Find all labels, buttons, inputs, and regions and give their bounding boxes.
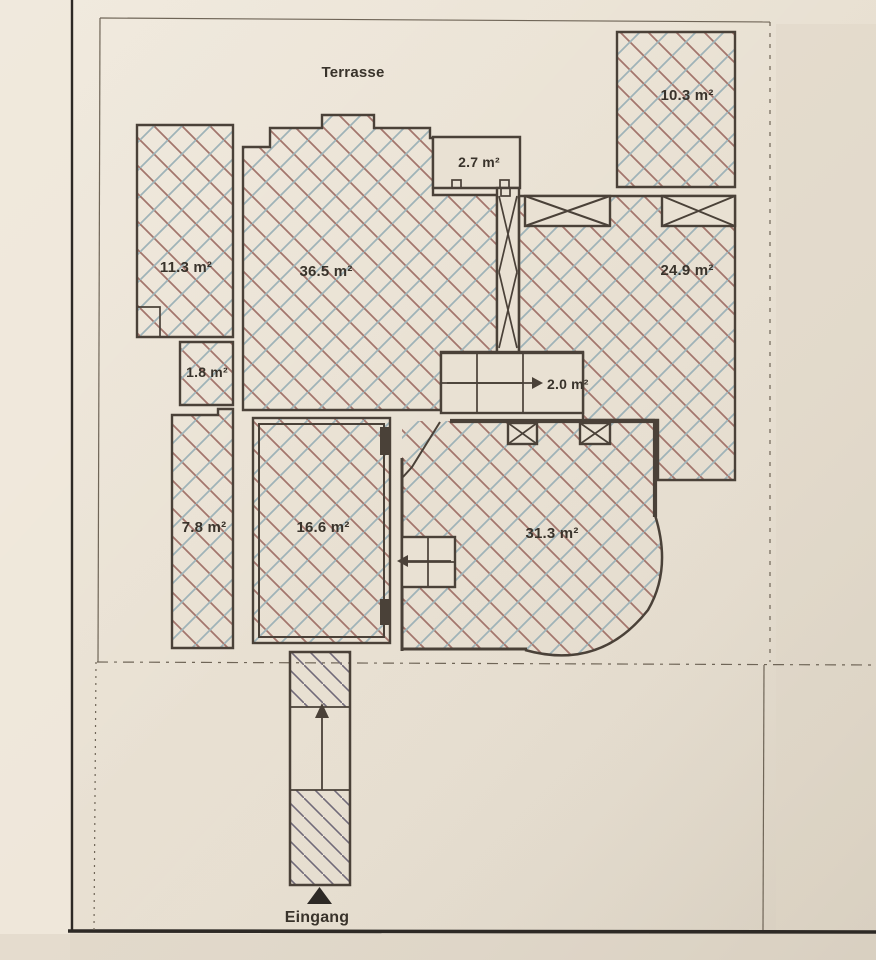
room-36-5-label: 36.5 m²: [299, 263, 352, 280]
room-7-8: 7.8 m²: [172, 409, 233, 648]
room-16-6: 16.6 m²: [253, 418, 390, 643]
room-11-3-label: 11.3 m²: [160, 259, 212, 276]
room-1-8-label: 1.8 m²: [186, 364, 228, 380]
door-jamb-icon: [380, 427, 389, 455]
chimney-shaft-icon: [497, 188, 519, 352]
eingang-label: Eingang: [285, 909, 350, 926]
room-24-9-label: 24.9 m²: [660, 262, 713, 279]
room-16-6-label: 16.6 m²: [296, 519, 349, 536]
staircase-2-0: 2.0 m²: [441, 353, 589, 413]
interior-stairs-icon: [397, 537, 455, 587]
room-1-8: 1.8 m²: [180, 342, 233, 405]
door-jamb-icon: [380, 599, 389, 625]
window-icon: [662, 196, 735, 226]
room-7-8-label: 7.8 m²: [182, 519, 227, 536]
walkway-hatch: [290, 652, 350, 707]
window-icon: [508, 423, 537, 444]
floor-plan-canvas: Terrasse 11.3 m² 36.5 m² 2.7 m² 24.9 m²: [0, 0, 876, 960]
room-31-3: 31.3 m²: [397, 419, 663, 656]
room-10-3: 10.3 m²: [617, 32, 735, 187]
room-11-3: 11.3 m²: [137, 125, 233, 337]
walkway-hatch: [290, 790, 350, 885]
floor-plan-photo: Terrasse 11.3 m² 36.5 m² 2.7 m² 24.9 m²: [0, 0, 876, 960]
window-icon: [580, 423, 610, 444]
page-bottom-rule: [68, 931, 876, 932]
room-2-7-label: 2.7 m²: [458, 154, 500, 170]
room-2-7: 2.7 m²: [433, 137, 520, 188]
room-10-3-label: 10.3 m²: [660, 87, 713, 104]
room-2-0-label: 2.0 m²: [547, 376, 589, 392]
window-icon: [525, 196, 610, 226]
room-31-3-label: 31.3 m²: [525, 525, 578, 542]
terrasse-label: Terrasse: [321, 64, 384, 81]
